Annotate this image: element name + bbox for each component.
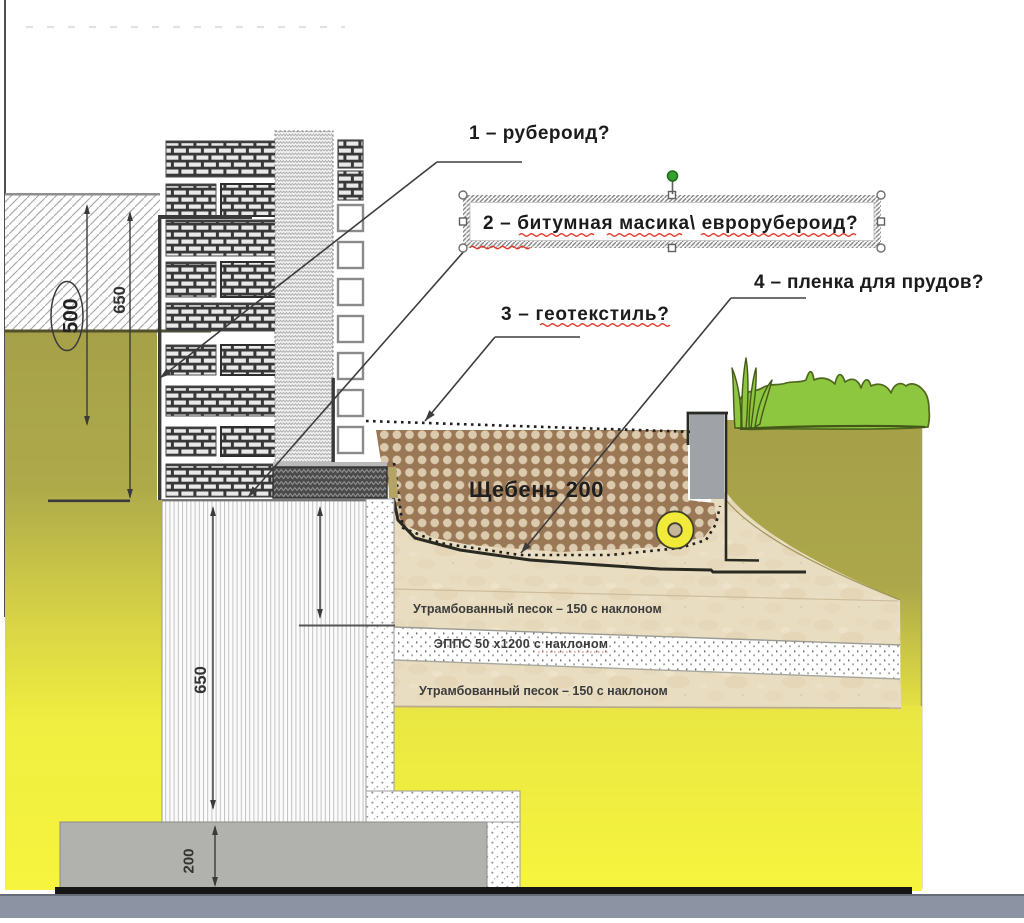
svg-text:650: 650 (111, 286, 129, 314)
svg-text:1 – рубероид?: 1 – рубероид? (469, 123, 610, 144)
svg-text:ЭППС 50 х1200 с наклоном: ЭППС 50 х1200 с наклоном (434, 637, 608, 651)
svg-text:Утрамбованный песок – 150 с на: Утрамбованный песок – 150 с наклоном (419, 684, 668, 698)
svg-text:200: 200 (181, 848, 198, 873)
svg-text:4 – пленка для прудов?: 4 – пленка для прудов? (754, 272, 984, 293)
svg-text:650: 650 (192, 666, 210, 694)
svg-text:3 – геотекстиль?: 3 – геотекстиль? (501, 304, 670, 325)
svg-text:Щебень 200: Щебень 200 (469, 477, 604, 502)
svg-text:Утрамбованный песок – 150 с на: Утрамбованный песок – 150 с наклоном (413, 602, 662, 616)
svg-text:2 – битумная масика\ еврорубер: 2 – битумная масика\ еврорубероид? (483, 213, 858, 234)
svg-text:500: 500 (60, 298, 83, 333)
